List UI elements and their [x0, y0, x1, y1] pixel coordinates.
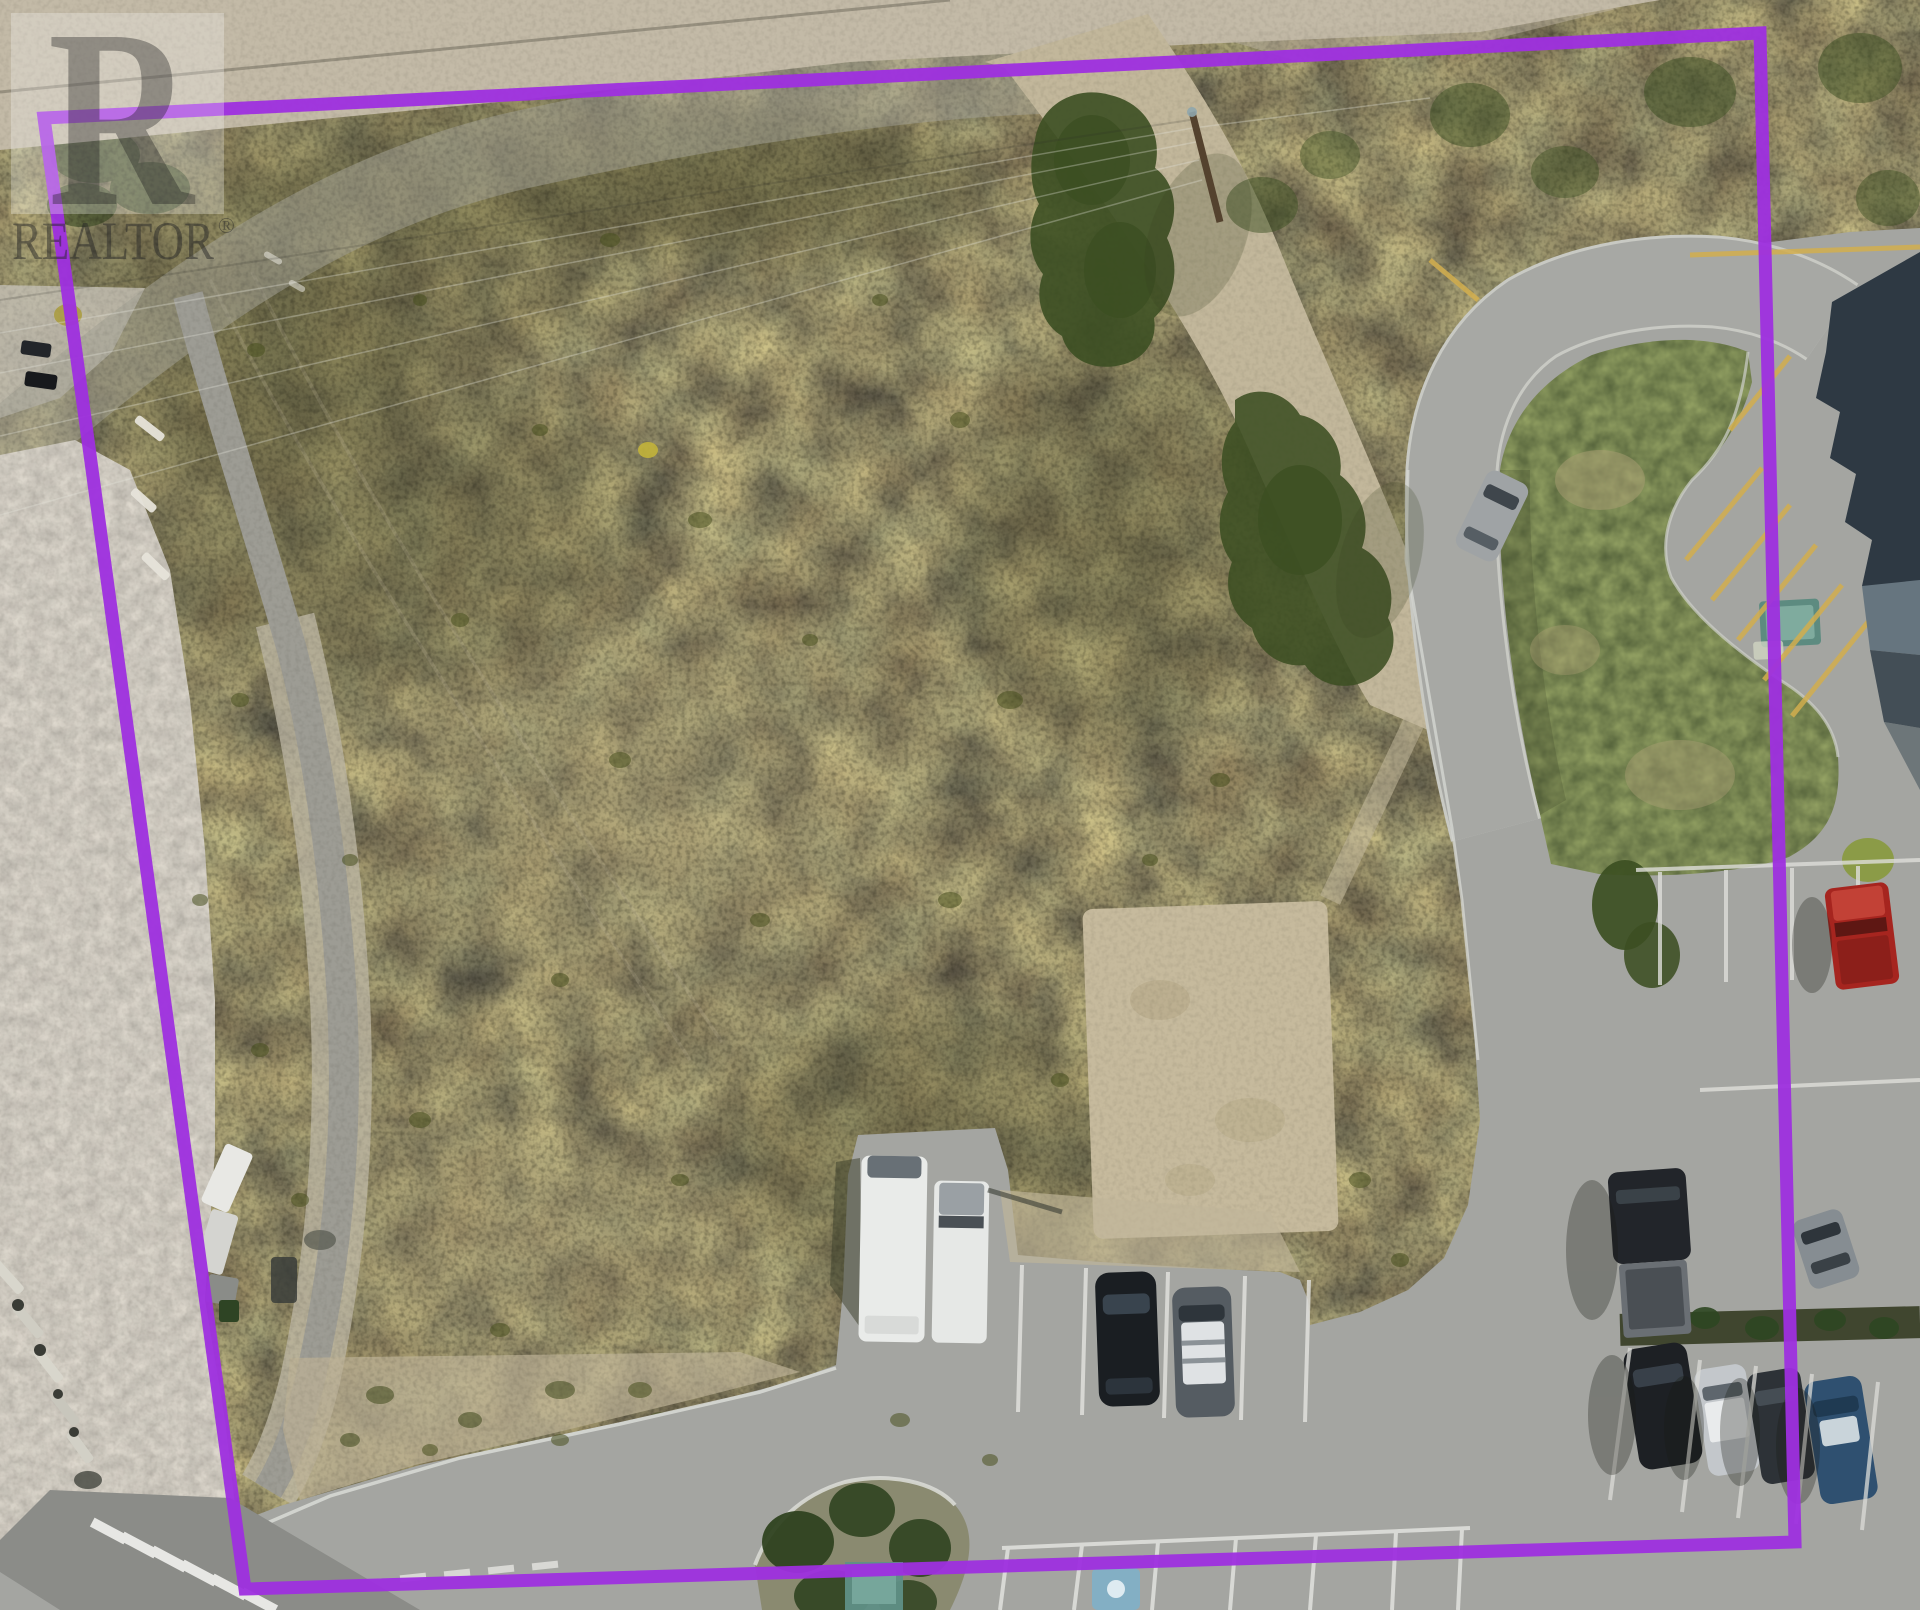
svg-text:REALTOR: REALTOR [12, 211, 214, 271]
svg-text:®: ® [218, 213, 235, 238]
